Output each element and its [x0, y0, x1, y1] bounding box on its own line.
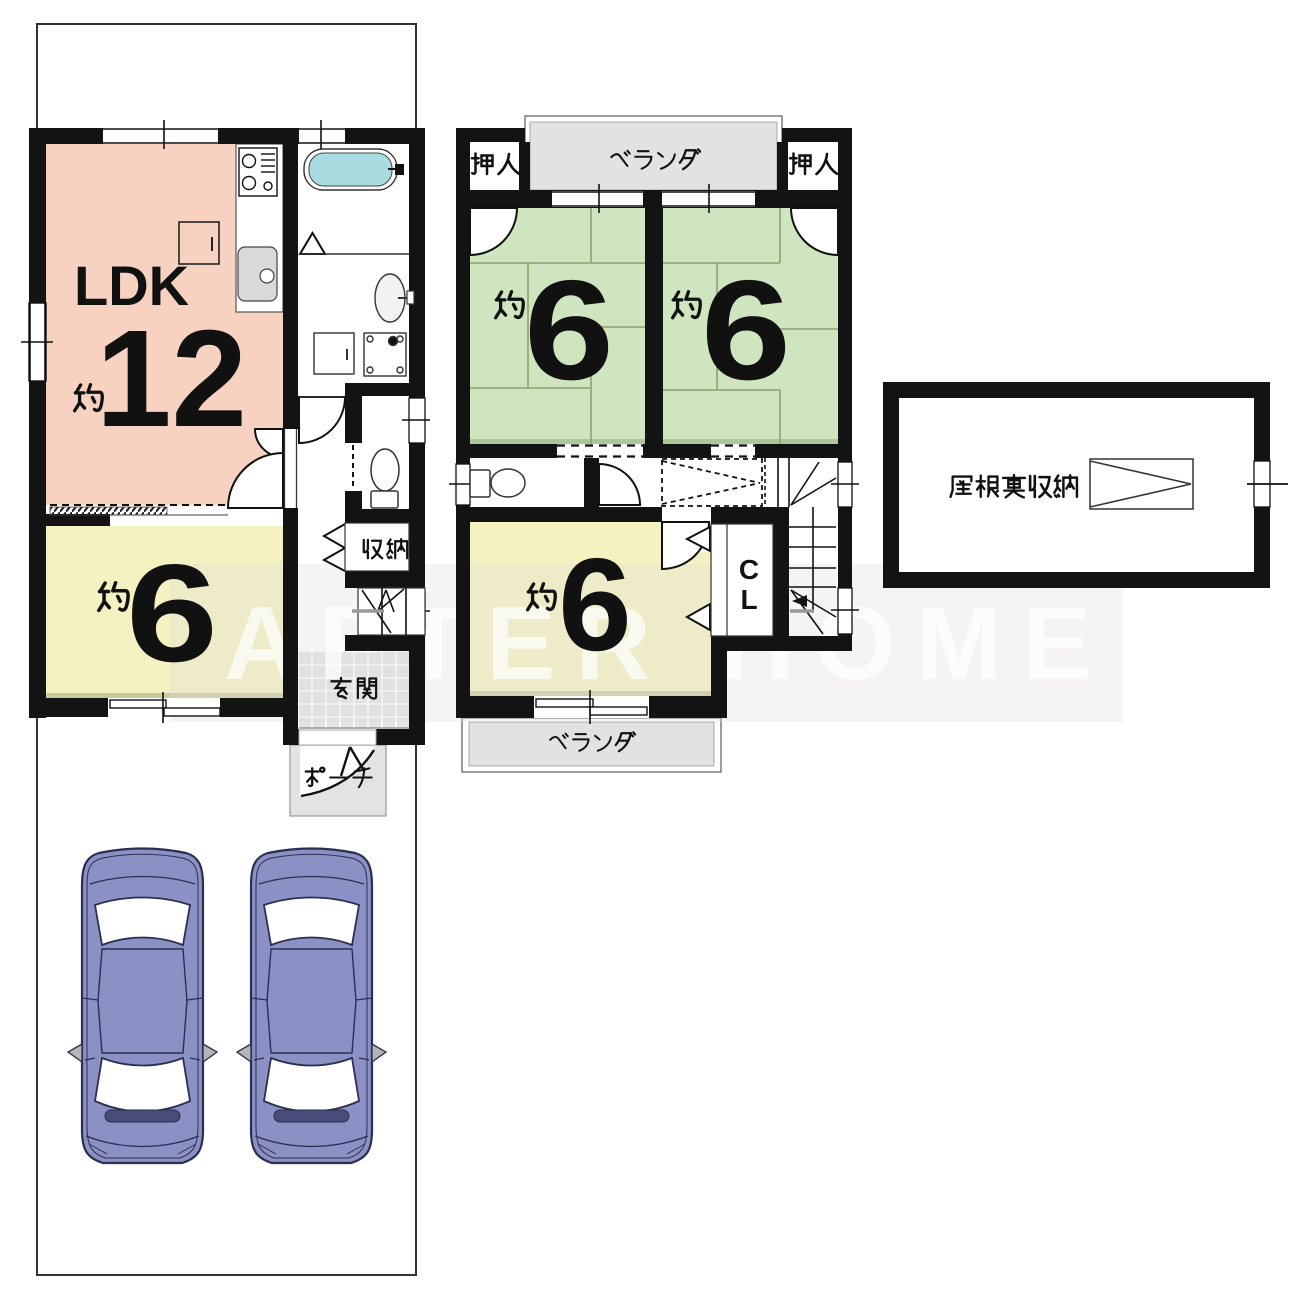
svg-text:C: C	[739, 554, 759, 585]
svg-text:6: 6	[524, 251, 614, 410]
svg-text:6: 6	[558, 531, 631, 678]
svg-text:12: 12	[96, 302, 247, 456]
svg-text:L: L	[740, 584, 757, 615]
svg-text:6: 6	[126, 536, 218, 691]
svg-text:6: 6	[701, 251, 791, 410]
